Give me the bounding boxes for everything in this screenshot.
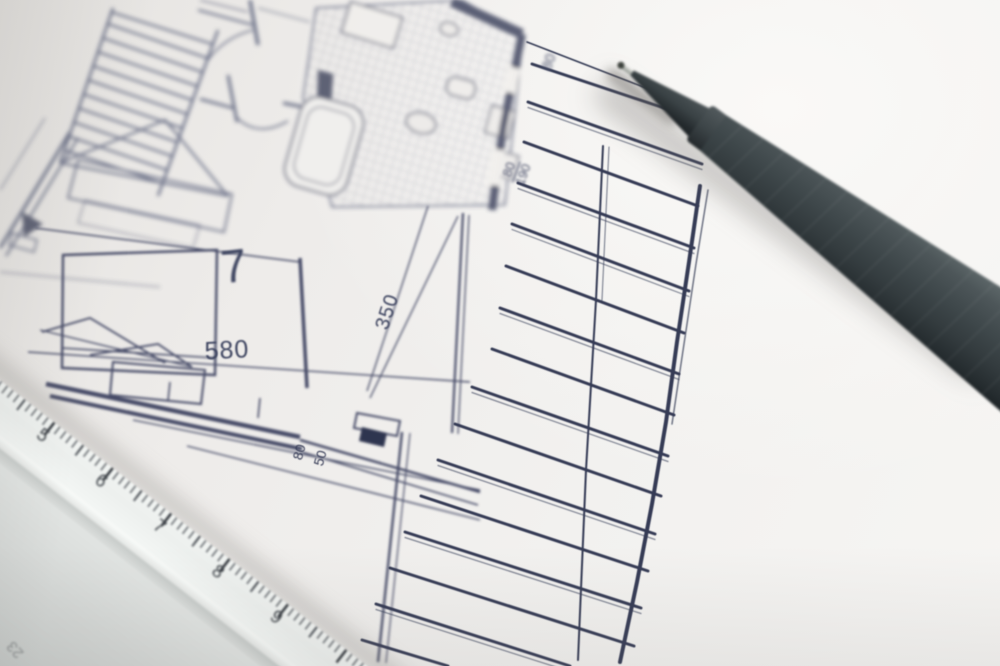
dimension-580-label: 580 xyxy=(204,335,250,366)
photo-scene: 7 580 350 80 80 190 80 50 4 5 6 7 8 9 23 xyxy=(0,0,1000,666)
